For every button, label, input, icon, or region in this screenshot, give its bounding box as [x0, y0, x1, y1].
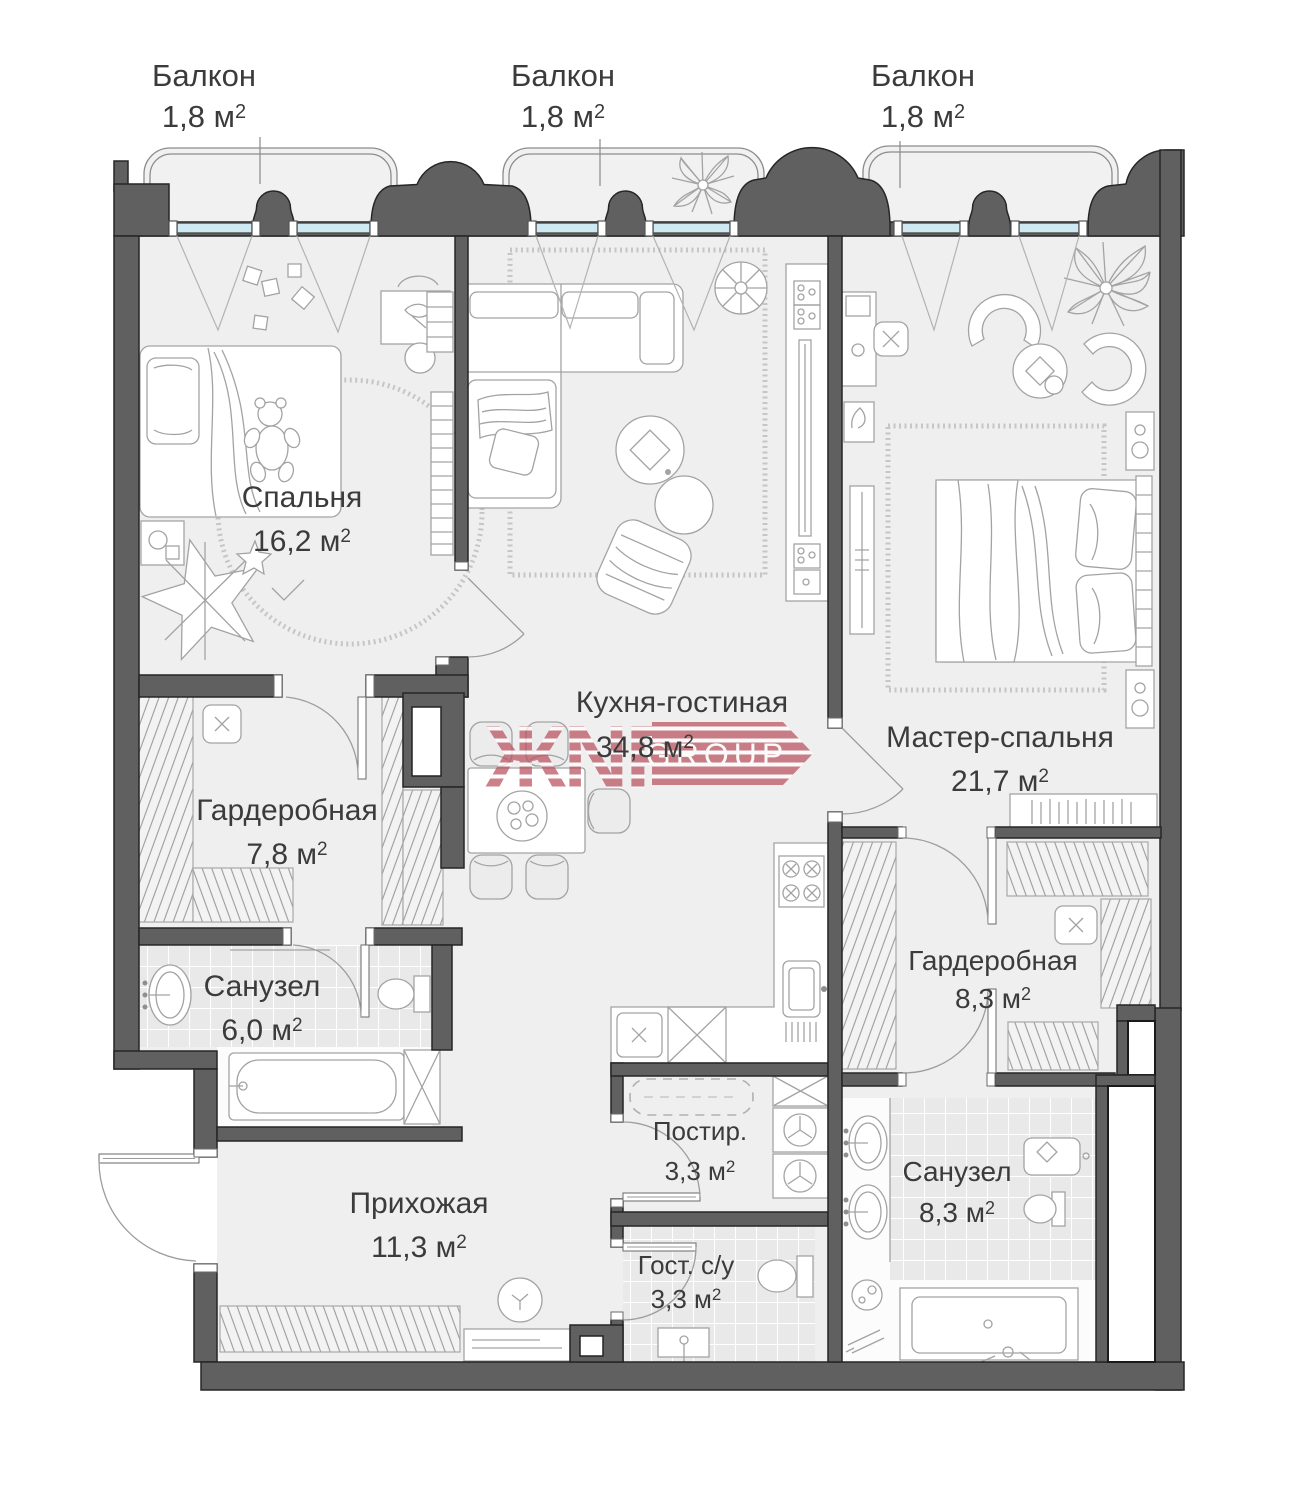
svg-text:Балкон: Балкон	[871, 58, 975, 93]
svg-text:1,8 м2: 1,8 м2	[881, 99, 965, 134]
svg-text:Санузел: Санузел	[902, 1156, 1011, 1187]
svg-text:Санузел: Санузел	[204, 970, 321, 1003]
svg-text:Балкон: Балкон	[152, 58, 256, 93]
svg-text:Гардеробная: Гардеробная	[908, 945, 1077, 976]
svg-text:Прихожая: Прихожая	[349, 1187, 488, 1220]
svg-text:11,3 м2: 11,3 м2	[371, 1231, 467, 1264]
svg-text:8,3 м2: 8,3 м2	[919, 1197, 995, 1228]
svg-text:Балкон: Балкон	[511, 58, 615, 93]
svg-text:8,3 м2: 8,3 м2	[955, 983, 1031, 1014]
svg-text:7,8 м2: 7,8 м2	[246, 838, 327, 871]
svg-text:21,7 м2: 21,7 м2	[951, 765, 1049, 798]
svg-text:Кухня-гостиная: Кухня-гостиная	[576, 686, 788, 719]
svg-text:6,0 м2: 6,0 м2	[221, 1014, 302, 1047]
svg-text:16,2 м2: 16,2 м2	[253, 525, 351, 558]
svg-text:3,3 м2: 3,3 м2	[651, 1284, 722, 1314]
svg-text:Гост. с/у: Гост. с/у	[638, 1250, 735, 1280]
svg-text:Мастер-спальня: Мастер-спальня	[886, 721, 1114, 754]
svg-text:Постир.: Постир.	[653, 1116, 747, 1146]
svg-text:Спальня: Спальня	[242, 481, 363, 514]
svg-text:Гардеробная: Гардеробная	[196, 794, 377, 827]
svg-text:1,8 м2: 1,8 м2	[162, 99, 246, 134]
svg-text:3,3 м2: 3,3 м2	[665, 1156, 736, 1186]
svg-text:34,8 м2: 34,8 м2	[596, 731, 694, 764]
svg-text:1,8 м2: 1,8 м2	[521, 99, 605, 134]
